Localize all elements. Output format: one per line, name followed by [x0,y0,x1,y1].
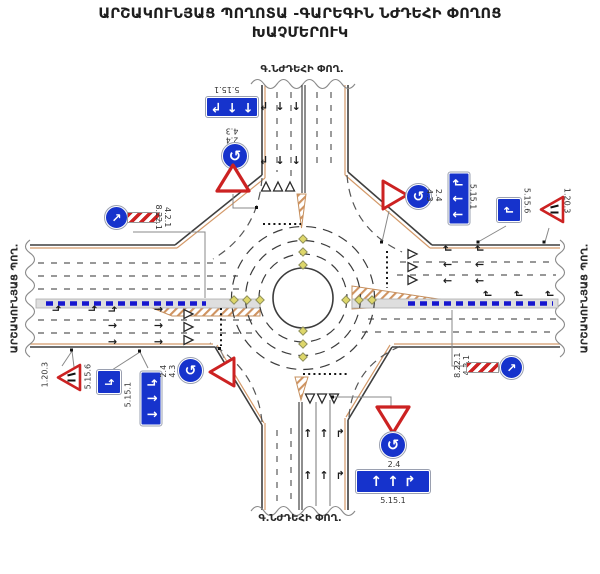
give-way-code: 2.4 [159,365,168,378]
straight-arrow-icon: ↑ [153,305,164,314]
turn-arrow-icon: ↱ [404,475,416,489]
straight-arrow-icon: ↑ [453,193,466,204]
give-way-code: 2.4 [388,460,401,469]
lane-arrows-west-approach: ↑↑↑ [153,304,164,348]
turn-arrow-icon: ↱ [259,154,268,165]
sign-code-label: 1.20.3 [562,186,571,216]
give-way-code: 2.4 [434,189,443,202]
lane-arrows-north-approach: ↑↑↱ [258,100,302,111]
lane-directions-sign-east: ↑ ↑ ↱ [449,173,470,225]
sign-code-label: 5.15.1 [123,380,132,410]
intersection-diagram: ԱՐՇԱԿՈՒՆՅԱՑ ՊՈՂՈՏԱ -ԳԱՐԵԳԻՆ ՆԺԴԵՀԻ ՓՈՂՈՑ… [0,0,600,574]
roundabout-arrows-icon: ↺ [387,438,400,453]
turn-arrow-icon: ↰ [51,304,62,313]
sign-code-label: 5.15.6 [522,186,531,216]
lane-arrows-west-approach: ↰↑↑ [107,304,118,348]
diagram-title-line1: ԱՐՇԱԿՈՒՆՅԱՑ ՊՈՂՈՏԱ -ԳԱՐԵԳԻՆ ՆԺԴԵՀԻ ՓՈՂՈՑ [0,6,600,22]
straight-arrow-icon: ↑ [153,337,164,346]
lane-begins-arrow-icon: ↱ [503,205,515,215]
road-narrows-sign-west [56,363,83,393]
straight-arrow-icon: ↑ [292,100,301,111]
lane-arrows-east-approach: ↑↑↱ [475,243,486,287]
lane-begins-sign-west: ↰ [97,370,121,394]
turn-arrow-icon: ↱ [443,244,454,253]
merge-hook-arrow: ↱ [545,288,556,300]
turn-arrow-icon: ↱ [545,289,556,298]
turn-arrow-icon: ↱ [211,101,222,114]
street-label-north: Գ.ՆԺԴԵՀԻ ՓՈՂ. [260,64,343,75]
straight-arrow-icon: ↑ [303,428,312,439]
keep-right-code: 4.2.1 [163,207,172,227]
straight-arrow-icon: ↑ [475,276,486,285]
straight-arrow-icon: ↑ [319,470,328,481]
straight-arrow-icon: ↑ [107,337,118,346]
lane-begins-arrow-icon: ↰ [103,377,115,387]
sign-code-label: 5.15.6 [83,362,92,392]
turn-arrow-icon: ↱ [483,289,494,298]
merge-hook-arrow: ↰ [51,303,62,315]
straight-arrow-icon: ↑ [443,276,454,285]
lane-arrows-north-approach: ↑↑↱ [258,154,302,165]
sign-code-label: 1.20.3 [40,360,49,390]
roundabout-sign-west: ↺ [178,358,203,383]
straight-arrow-icon: ↑ [107,321,118,330]
sign-code-label: 2.4 4.3 [425,185,443,205]
give-way-sign-west [207,355,237,389]
straight-arrow-icon: ↑ [453,209,466,220]
sign-code-label: 2.4 4.3 [159,361,177,381]
turn-arrow-icon: ↰ [87,304,98,313]
give-way-triangle [207,355,237,389]
give-way-sign-north [214,162,252,194]
straight-arrow-icon: ↑ [475,260,486,269]
street-label-east: ԱՐՇԱԿՈՒՆՅԱՑ ՊՈՂ. [580,239,591,359]
roundabout-arrows-icon: ↺ [185,364,197,378]
straight-arrow-icon: ↑ [242,101,253,114]
roundabout-code: 4.3 [168,365,177,378]
turn-arrow-icon: ↱ [453,177,466,188]
turn-arrow-icon: ↱ [475,244,486,253]
straight-arrow-icon: ↑ [387,475,399,489]
lane-directions-sign-south: ↑ ↑ ↱ [356,470,430,493]
lane-arrows-east-approach: ↑↑↱ [443,243,454,287]
sign-code-label: 5.15.1 [214,85,239,94]
straight-arrow-icon: ↑ [292,154,301,165]
roundabout-sign-south: ↺ [380,432,406,458]
turn-arrow-icon: ↰ [107,305,118,314]
give-way-triangle [214,162,252,194]
obstacle-plate-sign-se [466,362,499,373]
keep-right-sign-nw: ↗ [105,206,128,229]
obstacle-plate-code: 8.22.1 [453,352,462,377]
lane-arrows-south-approach: ↑↑↱ [302,428,346,439]
street-label-west: ԱՐՇԱԿՈՒՆՅԱՑ ՊՈՂ. [10,239,21,359]
turn-arrow-icon: ↱ [336,470,345,481]
turn-arrow-icon: ↱ [514,289,525,298]
lane-solid-thin [316,400,330,506]
turn-arrow-icon: ↰ [145,377,158,388]
straight-arrow-icon: ↑ [443,260,454,269]
merge-hook-arrow: ↱ [514,288,525,300]
turn-arrow-icon: ↱ [259,100,268,111]
lane-arrows-south-approach: ↑↑↱ [302,470,346,481]
sign-code-label: 2.4 4.3 [218,126,246,144]
straight-arrow-icon: ↑ [319,428,328,439]
straight-arrow-icon: ↑ [145,393,158,404]
keep-right-sign-se: ↗ [500,356,523,379]
keep-right-arrow-icon: ↗ [111,212,121,224]
road-narrows-triangle [56,363,83,393]
merge-hook-arrow: ↰ [87,303,98,315]
street-label-south: Գ.ՆԺԴԵՀԻ ՓՈՂ. [258,513,341,524]
roundabout-code: 4.3 [226,126,239,135]
obstacle-plate-code: 8.22.1 [154,204,163,229]
merge-hook-arrow: ↱ [483,288,494,300]
sign-code-label: 4.2.1 8.22.1 [154,202,172,232]
straight-arrow-icon: ↑ [153,321,164,330]
roundabout-arrows-icon: ↺ [413,190,425,204]
sign-code-label: 5.15.1 [365,496,421,505]
straight-arrow-icon: ↑ [145,409,158,420]
road-layout-drawing [0,0,600,574]
straight-arrow-icon: ↑ [303,470,312,481]
roundabout-code: 4.3 [425,189,434,202]
diagram-title-line2: ԽԱՉՄԵՐՈՒԿ [0,25,600,41]
lane-directions-sign-north: ↑ ↑ ↱ [206,97,258,117]
straight-arrow-icon: ↑ [370,475,382,489]
lane-begins-sign-east: ↱ [497,198,521,222]
straight-arrow-icon: ↑ [227,101,238,114]
sign-code-label: 5.15.1 [468,182,477,212]
keep-right-arrow-icon: ↗ [506,362,516,374]
straight-arrow-icon: ↑ [275,100,284,111]
straight-arrow-icon: ↑ [275,154,284,165]
turn-arrow-icon: ↱ [336,428,345,439]
